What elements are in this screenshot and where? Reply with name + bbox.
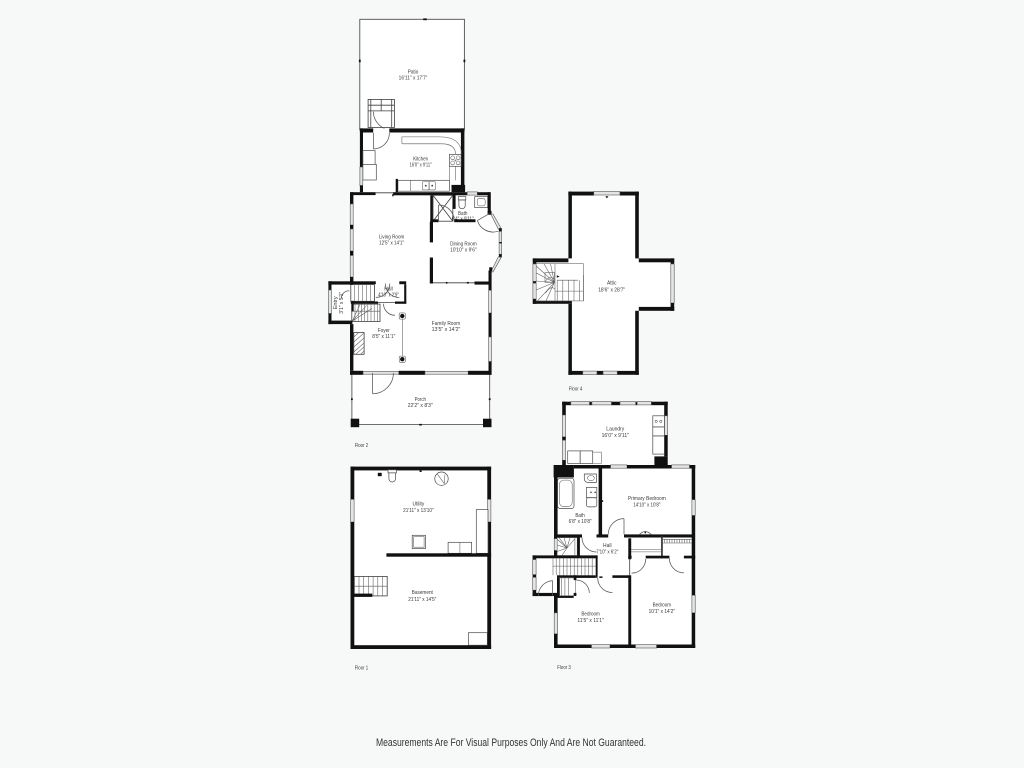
svg-text:Floor 4: Floor 4 [569, 386, 583, 392]
svg-text:Floor 2: Floor 2 [355, 443, 368, 449]
svg-text:Bedroom: Bedroom [581, 612, 600, 618]
svg-text:10'10" x 9'6": 10'10" x 9'6" [450, 247, 477, 253]
svg-text:Floor 1: Floor 1 [355, 665, 369, 671]
svg-text:Hall: Hall [603, 543, 612, 549]
svg-text:12'5" x 14'1": 12'5" x 14'1" [379, 240, 404, 246]
svg-text:Attic: Attic [607, 280, 617, 286]
svg-text:Porch: Porch [415, 397, 426, 403]
svg-text:11'5" x 11'1": 11'5" x 11'1" [577, 618, 603, 624]
svg-text:16'0" x 9'11": 16'0" x 9'11" [410, 162, 432, 168]
svg-text:8'5" x 11'1": 8'5" x 11'1" [372, 334, 395, 340]
svg-text:14'10" x 10'8": 14'10" x 10'8" [633, 503, 660, 509]
svg-text:Floor 3: Floor 3 [557, 665, 571, 671]
svg-text:4'10" x 2'9": 4'10" x 2'9" [378, 292, 399, 298]
svg-text:Bedroom: Bedroom [653, 602, 672, 608]
svg-text:10'1" x 14'2": 10'1" x 14'2" [649, 609, 675, 615]
svg-text:18'6" x 28'7": 18'6" x 28'7" [598, 288, 625, 294]
svg-text:Basement: Basement [412, 590, 433, 596]
svg-text:Utility: Utility [413, 501, 425, 507]
svg-text:3'1" x 5'1": 3'1" x 5'1" [339, 292, 345, 314]
svg-text:16'11" x 17'7": 16'11" x 17'7" [399, 75, 428, 81]
svg-text:22'2" x 8'3": 22'2" x 8'3" [408, 403, 433, 409]
svg-text:Bath: Bath [575, 513, 585, 519]
svg-text:16'0" x 9'11": 16'0" x 9'11" [602, 433, 629, 439]
svg-text:7'10" x 6'2": 7'10" x 6'2" [596, 549, 618, 555]
svg-text:Primary Bedroom: Primary Bedroom [628, 496, 666, 502]
svg-text:Measurements Are For Visual Pu: Measurements Are For Visual Purposes Onl… [376, 737, 646, 749]
svg-text:6'8" x 10'8": 6'8" x 10'8" [569, 519, 592, 525]
svg-text:13'5" x 14'2": 13'5" x 14'2" [432, 327, 461, 333]
svg-text:21'11" x 13'10": 21'11" x 13'10" [403, 508, 434, 514]
svg-text:Laundry: Laundry [606, 427, 624, 433]
svg-text:21'11" x 14'5": 21'11" x 14'5" [408, 597, 436, 603]
